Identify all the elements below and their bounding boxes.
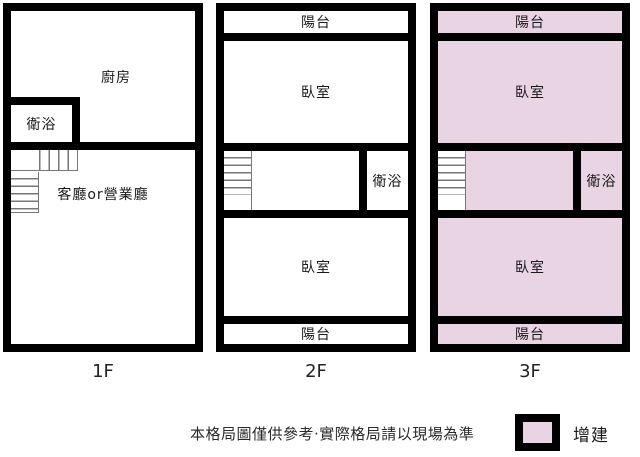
room-bathroom-3f: 衛浴: [581, 151, 622, 210]
stair-treads: [224, 151, 251, 195]
interior-wall: [224, 33, 408, 41]
hallway-band-3f: 衛浴: [438, 151, 622, 210]
floor-panel-1f: 廚房 衛浴 客廳or營業廳: [3, 3, 203, 352]
interior-wall: [11, 142, 195, 150]
interior-wall: [438, 316, 622, 324]
interior-wall: [224, 143, 408, 151]
interior-wall: [359, 151, 367, 210]
stair-treads: [39, 150, 77, 170]
room-bedroom-bottom-3f-label: 臥室: [515, 257, 545, 277]
floor-panel-3f: 陽台 臥室 衛浴 臥室 陽台: [430, 3, 630, 352]
room-bedroom-bottom-3f: 臥室: [438, 218, 622, 316]
room-balcony-top-2f-label: 陽台: [301, 12, 331, 32]
floor-label-1f: 1F: [3, 361, 203, 382]
room-bedroom-bottom-2f-label: 臥室: [301, 257, 331, 277]
room-bathroom-3f-label: 衛浴: [587, 171, 617, 191]
room-bathroom-2f: 衛浴: [367, 151, 408, 210]
room-bathroom-1f: 衛浴: [11, 97, 80, 142]
floor-label-2f: 2F: [216, 361, 416, 382]
room-living-label: 客廳or營業廳: [57, 187, 148, 203]
interior-wall: [224, 210, 408, 218]
room-balcony-top-3f: 陽台: [438, 11, 622, 33]
floor-panel-2f: 陽台 臥室 衛浴 臥室 陽台: [216, 3, 416, 352]
room-bathroom-1f-label: 衛浴: [27, 114, 57, 134]
interior-wall: [224, 316, 408, 324]
room-bedroom-top-3f-label: 臥室: [515, 82, 545, 102]
room-balcony-bottom-3f: 陽台: [438, 324, 622, 344]
floor-label-3f: 3F: [430, 361, 630, 382]
hallway-band-2f: 衛浴: [224, 151, 408, 210]
stair-treads: [438, 151, 465, 195]
room-bedroom-top-2f: 臥室: [224, 41, 408, 143]
room-balcony-bottom-3f-label: 陽台: [515, 324, 545, 344]
legend-addition-swatch: [515, 414, 560, 451]
room-bathroom-2f-label: 衛浴: [373, 171, 403, 191]
interior-wall: [438, 33, 622, 41]
staircase-upper-run: [11, 150, 78, 171]
interior-wall: [438, 210, 622, 218]
room-bedroom-bottom-2f: 臥室: [224, 218, 408, 316]
room-balcony-top-3f-label: 陽台: [515, 12, 545, 32]
interior-wall: [438, 143, 622, 151]
room-bedroom-top-3f: 臥室: [438, 41, 622, 143]
legend-addition-label: 增建: [573, 421, 609, 446]
staircase-3f: [438, 151, 466, 210]
disclaimer-text: 本格局圖僅供參考·實際格局請以現場為準: [190, 423, 474, 444]
room-living: 客廳or營業廳: [11, 184, 195, 204]
room-balcony-top-2f: 陽台: [224, 11, 408, 33]
room-balcony-bottom-2f-label: 陽台: [301, 324, 331, 344]
room-bedroom-top-2f-label: 臥室: [301, 82, 331, 102]
staircase-2f: [224, 151, 252, 210]
room-balcony-bottom-2f: 陽台: [224, 324, 408, 344]
interior-wall: [573, 151, 581, 210]
room-kitchen-label: 廚房: [101, 67, 131, 87]
